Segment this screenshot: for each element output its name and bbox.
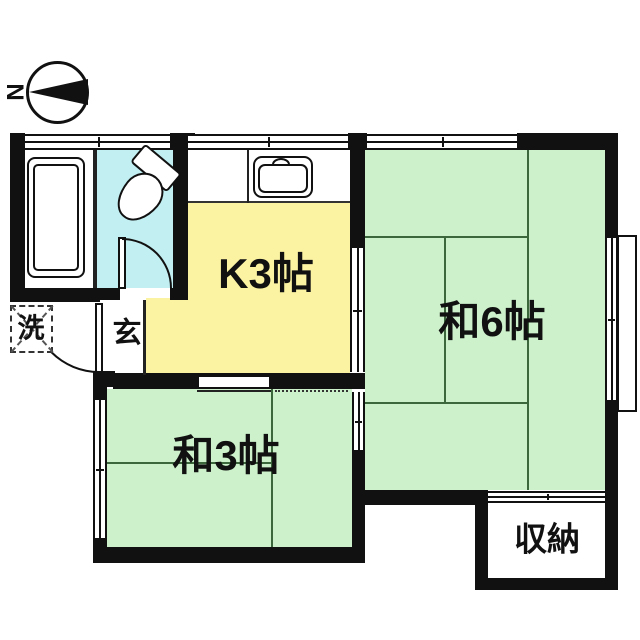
kitchen-sink-inner-icon: [258, 164, 308, 193]
counter-divider-line: [247, 150, 249, 203]
wall-storage-bottom: [475, 578, 618, 590]
kitchen-label: K3帖: [218, 253, 314, 295]
window-outer-frame: [617, 235, 637, 412]
door-track-line: [197, 390, 271, 392]
compass-north-label: N: [2, 83, 26, 100]
entrance-label: 玄: [112, 320, 141, 349]
wall-toilet-bottom: [93, 288, 120, 300]
floor-plan: N: [0, 0, 640, 640]
wall-toilet-bottom: [170, 288, 178, 300]
window-left-tatami3: [93, 400, 107, 538]
wall-top-segment: [348, 133, 367, 150]
wall-storage-left: [475, 503, 488, 590]
compass-north-arrow-icon: [29, 79, 88, 105]
sliding-door-tatami3-tatami6: [352, 392, 365, 450]
wall-bath-bottom: [10, 288, 100, 302]
wall-bath-toilet-divider: [93, 150, 97, 288]
window-top-tatami6: [367, 134, 517, 150]
tatami6-label: 和6帖: [438, 301, 545, 343]
wall-tatami6-bottom: [352, 490, 488, 505]
opening-dotted-line: [275, 390, 348, 392]
sliding-door-kitchen-tatami3: [197, 375, 271, 389]
kitchen-floor-west: [146, 298, 188, 375]
wall-kitchen-tatami6: [350, 150, 365, 248]
tatami-line: [365, 402, 527, 404]
window-top-kitchen: [188, 134, 348, 150]
bathtub-inner-icon: [33, 164, 79, 271]
wall-left-outer: [10, 133, 25, 302]
wall-entrance-block: [93, 371, 115, 387]
wall-top-right: [517, 133, 618, 150]
wall-tatami3-left-upper: [93, 387, 107, 400]
wall-right-upper: [605, 133, 618, 238]
tatami-line: [365, 236, 527, 238]
wall-right-lower: [605, 400, 618, 590]
wall-toilet-kitchen: [173, 133, 188, 300]
washer-label: 洗: [18, 316, 45, 343]
entrance-step-line: [143, 300, 146, 375]
sliding-door-storage: [488, 491, 605, 503]
storage-label: 収納: [514, 523, 580, 556]
sliding-door-kitchen-tatami6: [350, 248, 365, 372]
tatami3-label: 和3帖: [172, 435, 279, 477]
wall-tatami3-bottom: [93, 547, 365, 563]
